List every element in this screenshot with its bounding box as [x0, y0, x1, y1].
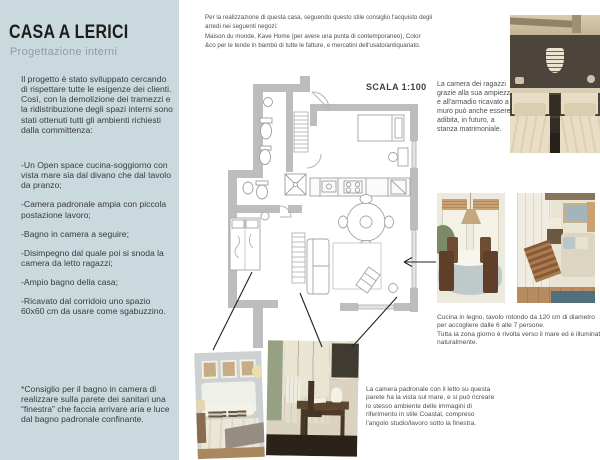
wall-shield-decor	[546, 48, 564, 73]
page-subtitle: Progettazione interni	[10, 46, 117, 58]
caption-kitchen: Cucina in legno, tavolo rotondo da 120 c…	[437, 314, 600, 348]
caption-kids-room: La camera dei ragazzi grazie alla sua am…	[437, 81, 515, 135]
photo-living-corner	[517, 193, 595, 303]
list-item: -Ricavato dal corridoio uno spazio 60x60…	[21, 296, 173, 316]
presentation-board: CASA A LERICI Progettazione interni Il p…	[0, 0, 600, 460]
room-list: -Un Open space cucina-soggiorno con vist…	[21, 160, 173, 326]
list-item: -Un Open space cucina-soggiorno con vist…	[21, 160, 173, 190]
sidebar: CASA A LERICI Progettazione interni Il p…	[0, 0, 179, 460]
list-item: -Ampio bagno della casa;	[21, 277, 173, 287]
photo-dining-room	[437, 193, 505, 303]
list-item: -Camera padronale ampia con piccola post…	[21, 199, 173, 219]
list-item: -Disimpegno dal quale poi si snoda la ca…	[21, 248, 173, 268]
plan-closets	[292, 112, 308, 283]
caption-master-bedroom: La camera padronale con il letto su ques…	[366, 386, 497, 428]
photo-master-bedroom	[194, 351, 265, 459]
page-title: CASA A LERICI	[9, 22, 128, 44]
plan-kitchen	[310, 178, 410, 196]
list-item: -Bagno in camera a seguire;	[21, 229, 173, 239]
shops-note: Per la realizzazione di questa casa, seg…	[205, 13, 433, 50]
photo-kids-bedroom	[510, 15, 600, 153]
advice-footnote: *Consiglio per il bagno in camera di rea…	[21, 384, 175, 425]
photo-desk-corner	[266, 340, 359, 457]
project-intro: Il progetto è stato sviluppato cercando …	[21, 74, 173, 135]
